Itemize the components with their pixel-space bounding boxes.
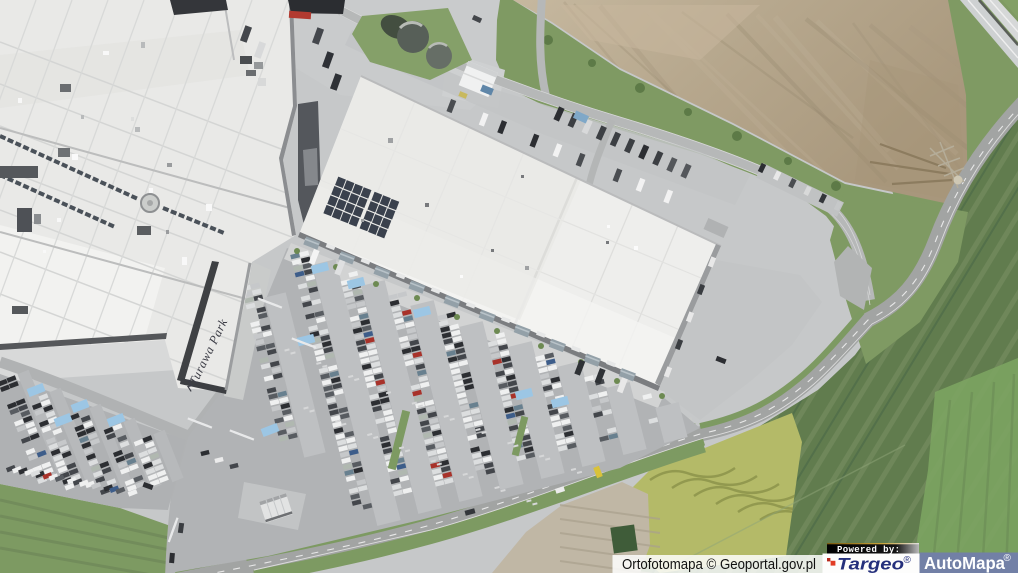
svg-text:®: ® bbox=[1004, 553, 1012, 564]
svg-text:Ortofotomapa © Geoportal.gov.p: Ortofotomapa © Geoportal.gov.pl bbox=[622, 557, 816, 573]
svg-text:®: ® bbox=[904, 555, 912, 566]
svg-text:Powered by:: Powered by: bbox=[837, 545, 900, 555]
svg-text:AutoMapa: AutoMapa bbox=[924, 553, 1005, 573]
svg-text:Targeo: Targeo bbox=[837, 555, 904, 573]
